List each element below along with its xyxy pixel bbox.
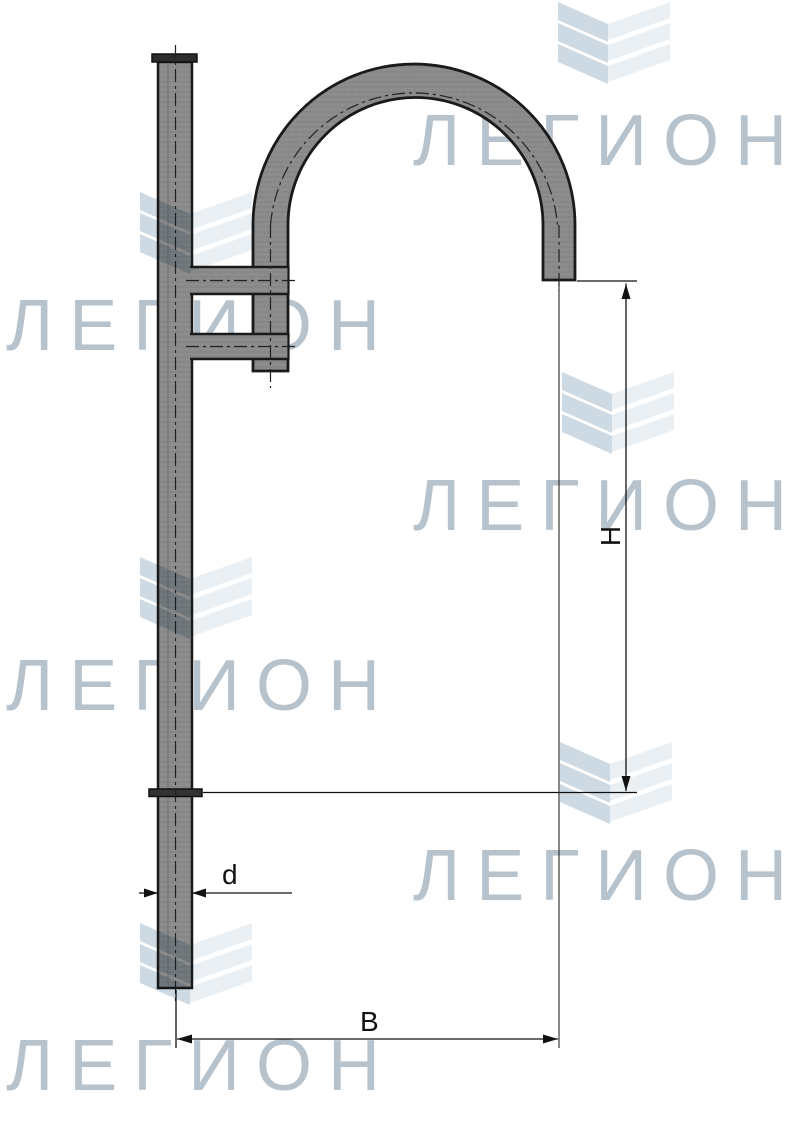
chevron-logo bbox=[140, 192, 252, 276]
b-arrow-right bbox=[543, 1035, 558, 1044]
pipe-top-cap bbox=[152, 54, 197, 62]
h-arrow-up bbox=[622, 284, 631, 299]
chevron-logo bbox=[560, 742, 672, 826]
d-arrow-right bbox=[192, 889, 206, 898]
chevron-logo bbox=[140, 557, 252, 641]
b-arrow-left bbox=[177, 1035, 192, 1044]
b-label: B bbox=[360, 1006, 379, 1037]
chevron-logo bbox=[562, 372, 674, 456]
technical-drawing: H B d bbox=[0, 0, 793, 1123]
chevron-logo bbox=[140, 923, 252, 1007]
canvas: ЛЕГИОН ЛЕГИОН ЛЕГИОН ЛЕГИОН ЛЕГИОН ЛЕГИО… bbox=[0, 0, 793, 1123]
h-label: H bbox=[595, 526, 626, 546]
chevron-logo bbox=[558, 2, 670, 86]
d-label: d bbox=[222, 859, 238, 890]
hook-arch bbox=[253, 64, 575, 371]
d-arrow-left bbox=[144, 889, 158, 898]
